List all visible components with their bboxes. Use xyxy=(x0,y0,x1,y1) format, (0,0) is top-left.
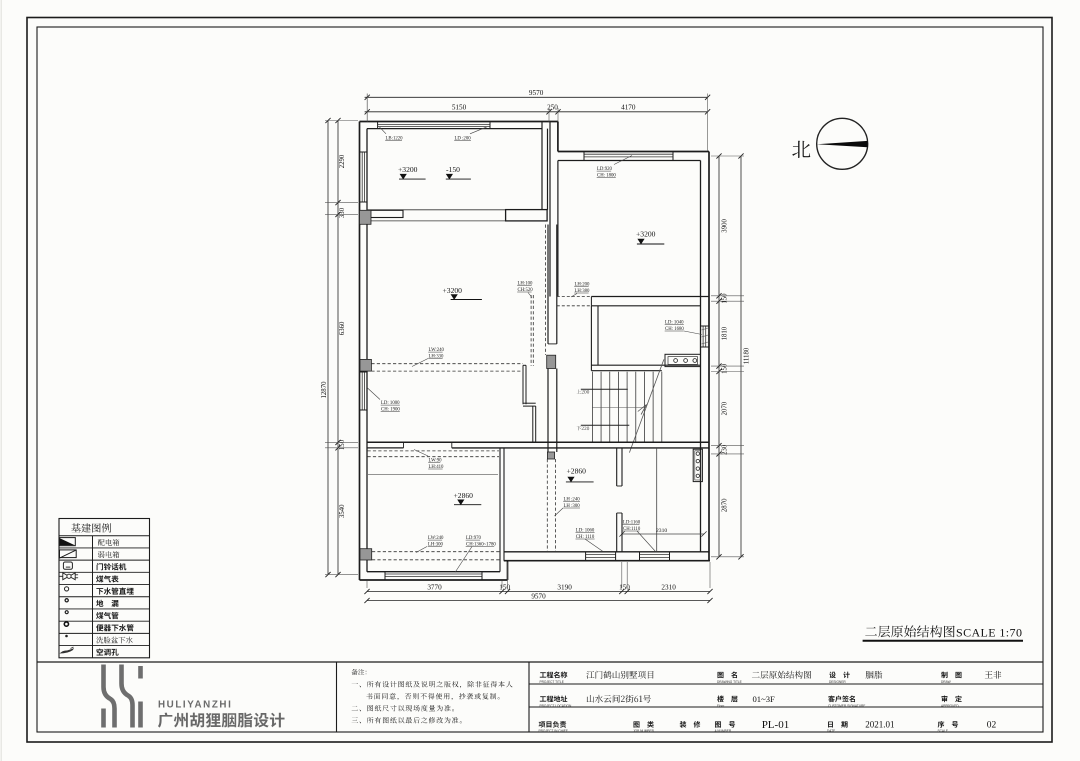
svg-text:9570: 9570 xyxy=(529,89,544,97)
svg-text:DRAW: DRAW xyxy=(941,680,951,684)
svg-text:1810: 1810 xyxy=(722,326,729,340)
svg-text:150: 150 xyxy=(619,583,630,591)
svg-text:150: 150 xyxy=(722,293,729,304)
svg-text:3770: 3770 xyxy=(427,583,442,591)
svg-text:Floor: Floor xyxy=(717,704,725,708)
svg-text:2070: 2070 xyxy=(722,401,729,415)
svg-text:3190: 3190 xyxy=(557,583,572,591)
svg-text:DATE: DATE xyxy=(827,729,835,733)
svg-text:PROJECT LOCATION: PROJECT LOCATION xyxy=(540,704,572,708)
svg-text:HULIYANZHI: HULIYANZHI xyxy=(158,700,232,711)
svg-text:CUSTOMER SIGNATURE: CUSTOMER SIGNATURE xyxy=(828,704,865,708)
svg-text:330: 330 xyxy=(339,207,346,218)
svg-text:DESIGNER: DESIGNER xyxy=(829,680,846,684)
svg-text:150: 150 xyxy=(722,363,729,374)
svg-text:+2860: +2860 xyxy=(567,467,587,476)
svg-text:2310: 2310 xyxy=(661,583,676,591)
svg-text:2310: 2310 xyxy=(656,528,667,534)
svg-text:11180: 11180 xyxy=(744,347,751,364)
svg-text:150: 150 xyxy=(499,583,510,591)
svg-text:APPROVED: APPROVED xyxy=(941,704,959,708)
svg-text:2290: 2290 xyxy=(339,154,346,168)
svg-text:SCALE 1:70: SCALE 1:70 xyxy=(956,625,1022,639)
svg-text:3900: 3900 xyxy=(722,219,729,233)
svg-text:01~3F: 01~3F xyxy=(753,694,776,704)
svg-text:A NUMBER: A NUMBER xyxy=(715,729,732,733)
svg-text:02: 02 xyxy=(987,721,997,731)
svg-text:DRAWING TITLE: DRAWING TITLE xyxy=(717,680,742,684)
svg-text:150: 150 xyxy=(339,439,346,450)
svg-text:+2860: +2860 xyxy=(454,491,474,500)
svg-text:6360: 6360 xyxy=(339,321,346,335)
svg-text:12870: 12870 xyxy=(321,381,328,399)
svg-text:4170: 4170 xyxy=(621,103,636,111)
svg-text:2870: 2870 xyxy=(722,498,729,512)
svg-text:+3200: +3200 xyxy=(636,230,656,239)
svg-text:SCALE: SCALE xyxy=(938,729,948,733)
svg-text:9570: 9570 xyxy=(531,593,546,601)
svg-text:JOB NUMBER: JOB NUMBER xyxy=(633,729,655,733)
svg-text:+3200: +3200 xyxy=(443,286,463,295)
svg-text:3540: 3540 xyxy=(339,504,346,518)
svg-text:PL-01: PL-01 xyxy=(762,719,790,731)
svg-text:-150: -150 xyxy=(446,165,460,174)
svg-text:PROJECT IN CHIEF: PROJECT IN CHIEF xyxy=(539,729,568,733)
svg-text:+3200: +3200 xyxy=(398,165,418,174)
svg-text:PROJECT TITLE: PROJECT TITLE xyxy=(540,680,564,684)
svg-text:5150: 5150 xyxy=(452,103,467,111)
svg-text:2021.01: 2021.01 xyxy=(865,720,894,730)
